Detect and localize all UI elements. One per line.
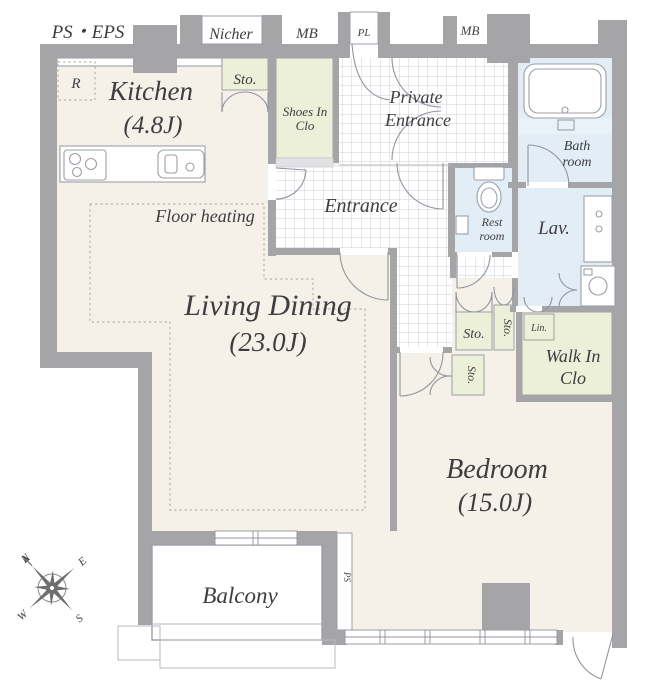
label-lavatory: Lav. [537,218,570,239]
compass-w: W [15,608,30,624]
label-restroom-1: Rest [481,215,503,229]
compass-rose: N E S W [0,535,94,630]
label-ps-shaft: PS [342,571,352,582]
label-kitchen-size: (4.8J) [124,112,183,139]
label-bedroom: Bedroom [446,454,548,485]
label-ps-eps: PS・EPS [51,22,125,43]
label-nicher: Nicher [208,26,253,43]
label-entrance: Entrance [323,195,397,217]
compass-e: E [75,555,89,569]
label-walk-in-clo-1: Walk In [546,346,601,366]
label-mb-left: MB [295,26,318,42]
label-private-entrance-1: Private [389,87,443,107]
washing-machine-icon [581,266,615,306]
label-bedroom-size: (15.0J) [458,488,532,517]
living-balcony-window [215,531,297,545]
label-pl: PL [357,27,371,39]
label-balcony: Balcony [202,583,278,608]
label-linen: Lin. [530,323,547,334]
label-bathroom-2: room [562,155,591,170]
label-mb-right: MB [460,23,480,38]
label-sto-b: Sto. [501,319,515,337]
bedroom-pillar [482,583,530,630]
floor-plan: PS・EPS Nicher MB PL MB R Kitchen (4.8J) … [0,0,650,690]
label-bathroom-1: Bath [564,139,590,154]
label-floor-heating: Floor heating [154,206,255,226]
label-restroom-2: room [480,229,505,243]
label-living-dining-size: (23.0J) [229,327,306,357]
bedroom-window [345,630,557,644]
label-living-dining: Living Dining [183,289,352,322]
label-sto-a: Sto. [463,327,484,342]
label-sto-top: Sto. [234,72,257,88]
label-fridge: R [70,76,80,92]
label-shoes-clo-1: Shoes In [283,104,327,119]
compass-s: S [74,612,86,625]
label-private-entrance-2: Entrance [384,110,451,130]
kitchen-sink-icon [158,150,204,178]
label-shoes-clo-2: Clo [296,118,315,133]
label-kitchen: Kitchen [108,76,193,106]
label-sto-c: Sto. [465,366,479,384]
label-walk-in-clo-2: Clo [560,368,586,388]
stove-icon [64,150,106,180]
washbasin-icon [584,196,612,262]
